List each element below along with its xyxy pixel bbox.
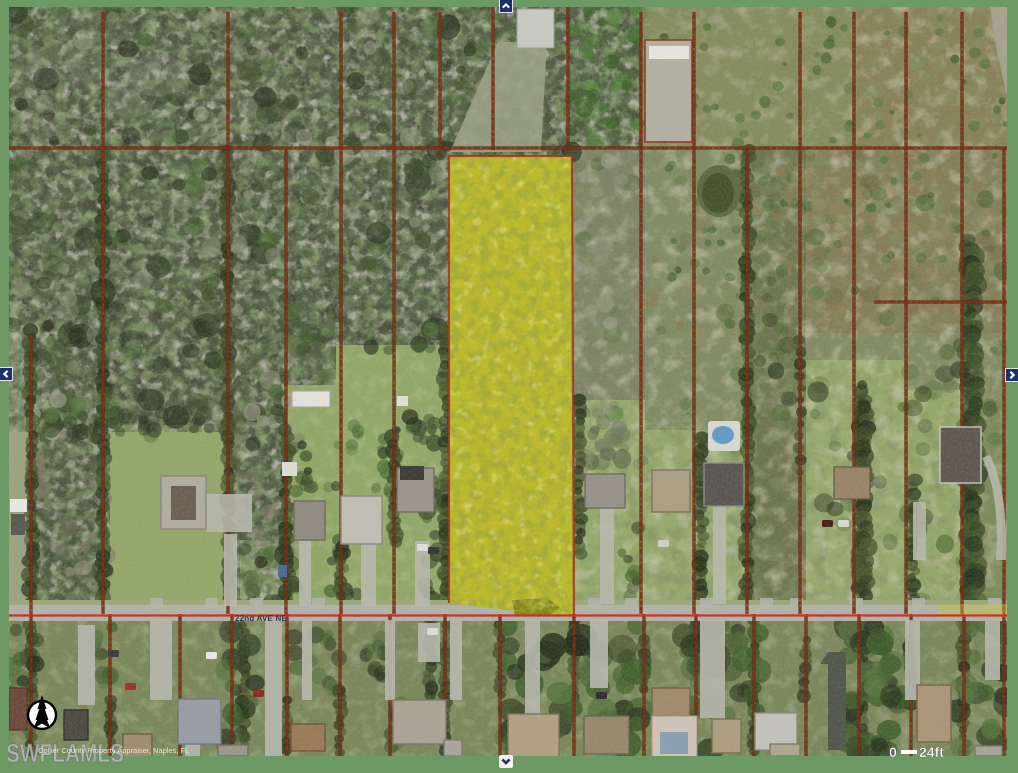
svg-text:Collier County Property Apprai: Collier County Property Appraiser, Naple…: [38, 746, 189, 755]
svg-text:0: 0: [889, 744, 897, 760]
svg-text:22nd AVE NE: 22nd AVE NE: [235, 614, 287, 623]
svg-text:24ft: 24ft: [919, 744, 944, 760]
